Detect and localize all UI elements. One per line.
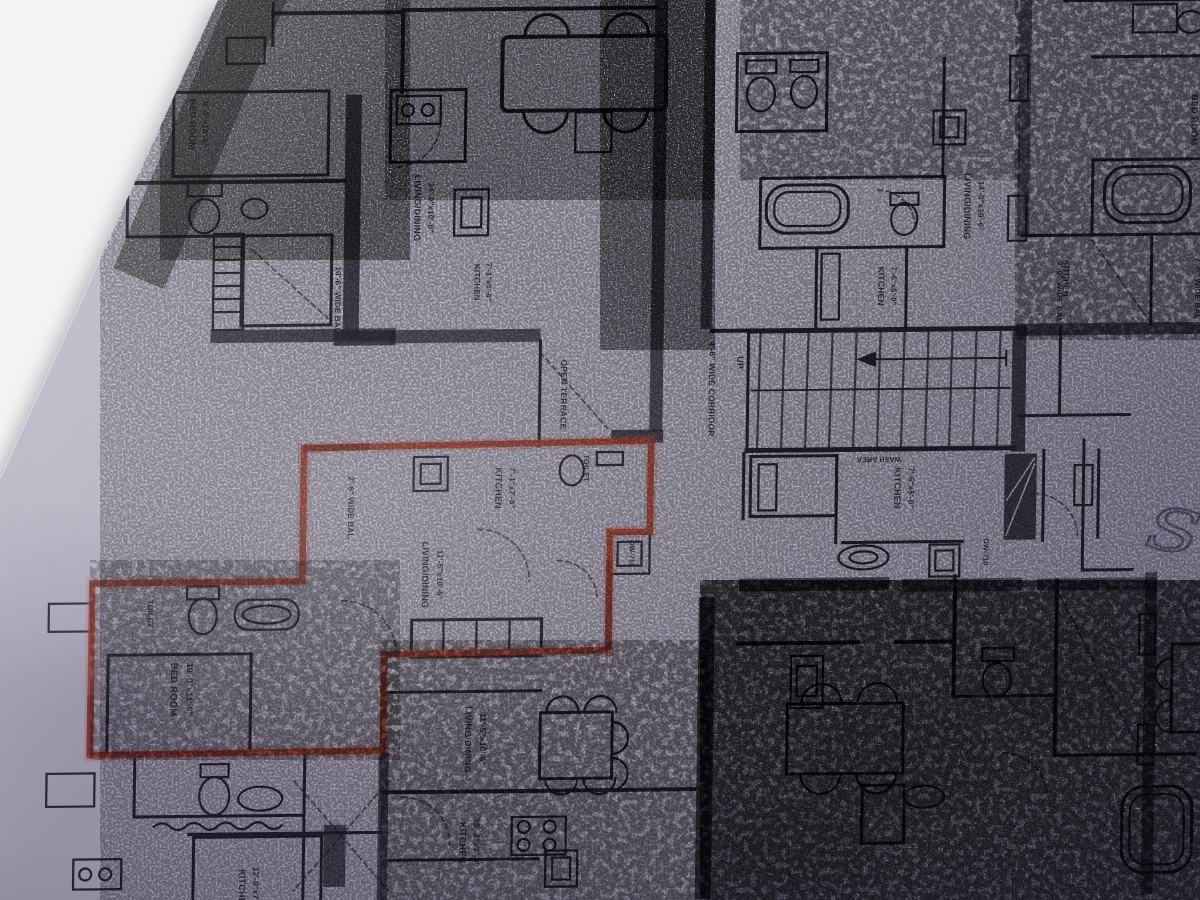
paper-shadow-wrap: BED ROOM8'-0"x10'-0"10'-6" WIDE BAL.LIVI… [0,0,1200,900]
photographed-floor-plan: BED ROOM8'-0"x10'-0"10'-6" WIDE BAL.LIVI… [0,0,1200,900]
blueprint-paper: BED ROOM8'-0"x10'-0"10'-6" WIDE BAL.LIVI… [0,0,1200,900]
floor-plan-svg: BED ROOM8'-0"x10'-0"10'-6" WIDE BAL.LIVI… [0,0,1200,900]
photocopy-noise-layer [90,0,1200,900]
